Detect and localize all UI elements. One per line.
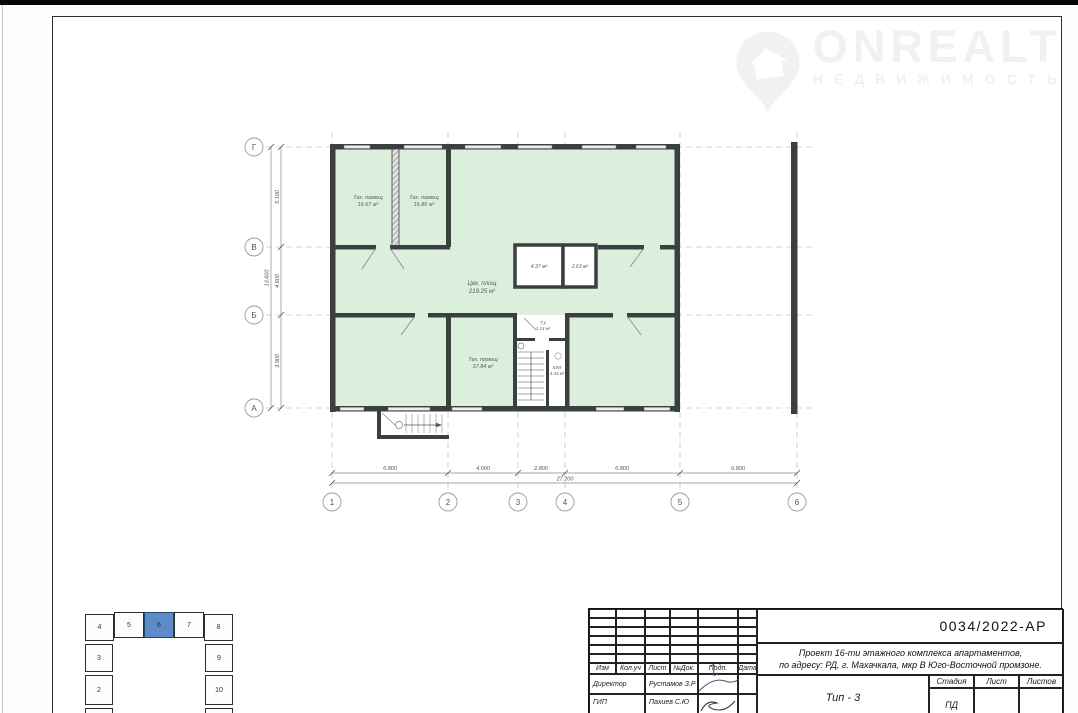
sheet-value: [974, 688, 1019, 713]
room-label: Т.у: [540, 320, 547, 325]
col-axis-label: 5: [678, 498, 683, 507]
room-label: Тех. помещ: [468, 357, 498, 363]
col-axis-label: 1: [330, 498, 335, 507]
room-area: 16.86 м²: [414, 202, 435, 208]
col-header: Подп.: [698, 663, 738, 674]
col-header: Дата: [738, 663, 757, 674]
key-plan-block: 1: [85, 708, 113, 713]
title-block: Изм Кол.уч Лист №Док. Подп. Дата Директо…: [588, 608, 1063, 713]
stage-value: ПД: [929, 688, 974, 713]
dim-label: 4.000: [476, 466, 491, 472]
room-area: 219.25 м²: [468, 289, 496, 295]
key-plan-block: 10: [205, 675, 233, 705]
col-axis-label: 3: [516, 498, 521, 507]
block-number: 5: [127, 622, 131, 629]
drawing-sheet: ONREALT НЕДВИЖИМОСТЬ: [0, 0, 1078, 713]
sheet-header: Лист: [974, 675, 1019, 688]
key-plan-block: 8: [204, 614, 233, 641]
dim-total: 13.600: [265, 269, 271, 287]
room-area: 4.37 м²: [531, 264, 548, 270]
col-axis-markers: 1 2 3 4 5 6: [323, 493, 806, 511]
block-number: 8: [217, 624, 221, 631]
document-code: 0034/2022-АР: [757, 609, 1064, 643]
detached-wall-axis-6: [791, 142, 798, 414]
col-header: Кол.уч: [616, 663, 645, 674]
block-number: 7: [187, 622, 191, 629]
room-area: 37.84 м²: [473, 364, 494, 370]
hatched-shaft-wall: [392, 149, 399, 247]
col-header: №Док.: [670, 663, 698, 674]
dimensions-bottom: 6.800 4.000 2.800 6.800 6.800 27.200: [329, 466, 800, 486]
room-area: 4.43 м²: [550, 371, 565, 376]
room-area: 1.14 м²: [536, 326, 551, 331]
key-plan-block: 2: [85, 675, 113, 705]
key-plan-block-highlighted: 6: [144, 612, 174, 638]
key-plan-block: 9: [205, 644, 233, 672]
dim-label: 6.800: [383, 466, 398, 472]
col-header: Изм: [589, 663, 616, 674]
dim-label: 3.900: [275, 353, 281, 368]
dim-label: 4.600: [275, 273, 281, 288]
room-label: Тех. помещ: [409, 195, 439, 201]
col-axis-label: 4: [563, 498, 568, 507]
stage-header: Стадия: [929, 675, 974, 688]
signer-role: ГИП: [589, 694, 645, 713]
sheets-header: Листов: [1019, 675, 1064, 688]
project-line-2: по адресу: РД, г. Махачкала, мкр В Юго-В…: [779, 659, 1042, 671]
block-number: 2: [97, 687, 101, 694]
row-axis-label: А: [251, 404, 257, 413]
signer-name: Рустамов З.Р: [645, 674, 698, 694]
row-axis-label: Г: [252, 143, 257, 152]
key-plan-block: 7: [174, 612, 204, 638]
dim-label: 2.800: [533, 466, 549, 472]
dim-label: 6.800: [731, 466, 746, 472]
sheet-title: Тип - 3: [757, 675, 929, 713]
room-area: 16.67 м²: [358, 202, 379, 208]
project-description: Проект 16-ти этажного комплекса апартаме…: [757, 643, 1064, 675]
floor-area: [330, 147, 680, 409]
room-area: 2.63 м²: [571, 264, 589, 270]
dimensions-left: 5.100 4.600 3.900 13.600: [265, 144, 285, 411]
row-axis-label: Б: [251, 311, 256, 320]
block-number: 9: [217, 655, 221, 662]
key-plan-block: 11: [205, 708, 233, 713]
key-plan-block: 5: [114, 612, 144, 638]
key-plan-block: 4: [85, 614, 114, 641]
block-number: 4: [98, 624, 102, 631]
entry-arrow: [436, 423, 442, 427]
row-axis-markers: Г В Б А: [245, 138, 263, 417]
project-line-1: Проект 16-ти этажного комплекса апартаме…: [799, 647, 1022, 659]
entrance-porch: [377, 411, 449, 439]
building-key-plan: 4 5 6 7 8 3 2 1 9 10 11: [85, 610, 235, 713]
room-label: КУИ: [553, 365, 563, 370]
block-number: 6: [157, 622, 161, 629]
room-label: Цех. площ: [467, 281, 496, 287]
dim-total: 27.200: [556, 477, 575, 483]
row-axis-label: В: [251, 243, 256, 252]
col-header: Лист: [645, 663, 670, 674]
block-number: 10: [215, 687, 223, 694]
sheets-value: [1019, 688, 1064, 713]
block-number: 3: [97, 655, 101, 662]
col-axis-label: 2: [446, 498, 451, 507]
signer-role: Директор: [589, 674, 645, 694]
key-plan-block: 3: [85, 644, 113, 672]
dim-label: 6.800: [615, 466, 630, 472]
dim-label: 5.100: [275, 189, 281, 204]
room-label: Тех. помещ: [353, 195, 383, 201]
floor-plan: Тех. помещ 16.67 м² Тех. помещ 16.86 м² …: [0, 0, 1078, 713]
col-axis-label: 6: [795, 498, 800, 507]
signer-name: Пахиев С.Ю: [645, 694, 698, 713]
